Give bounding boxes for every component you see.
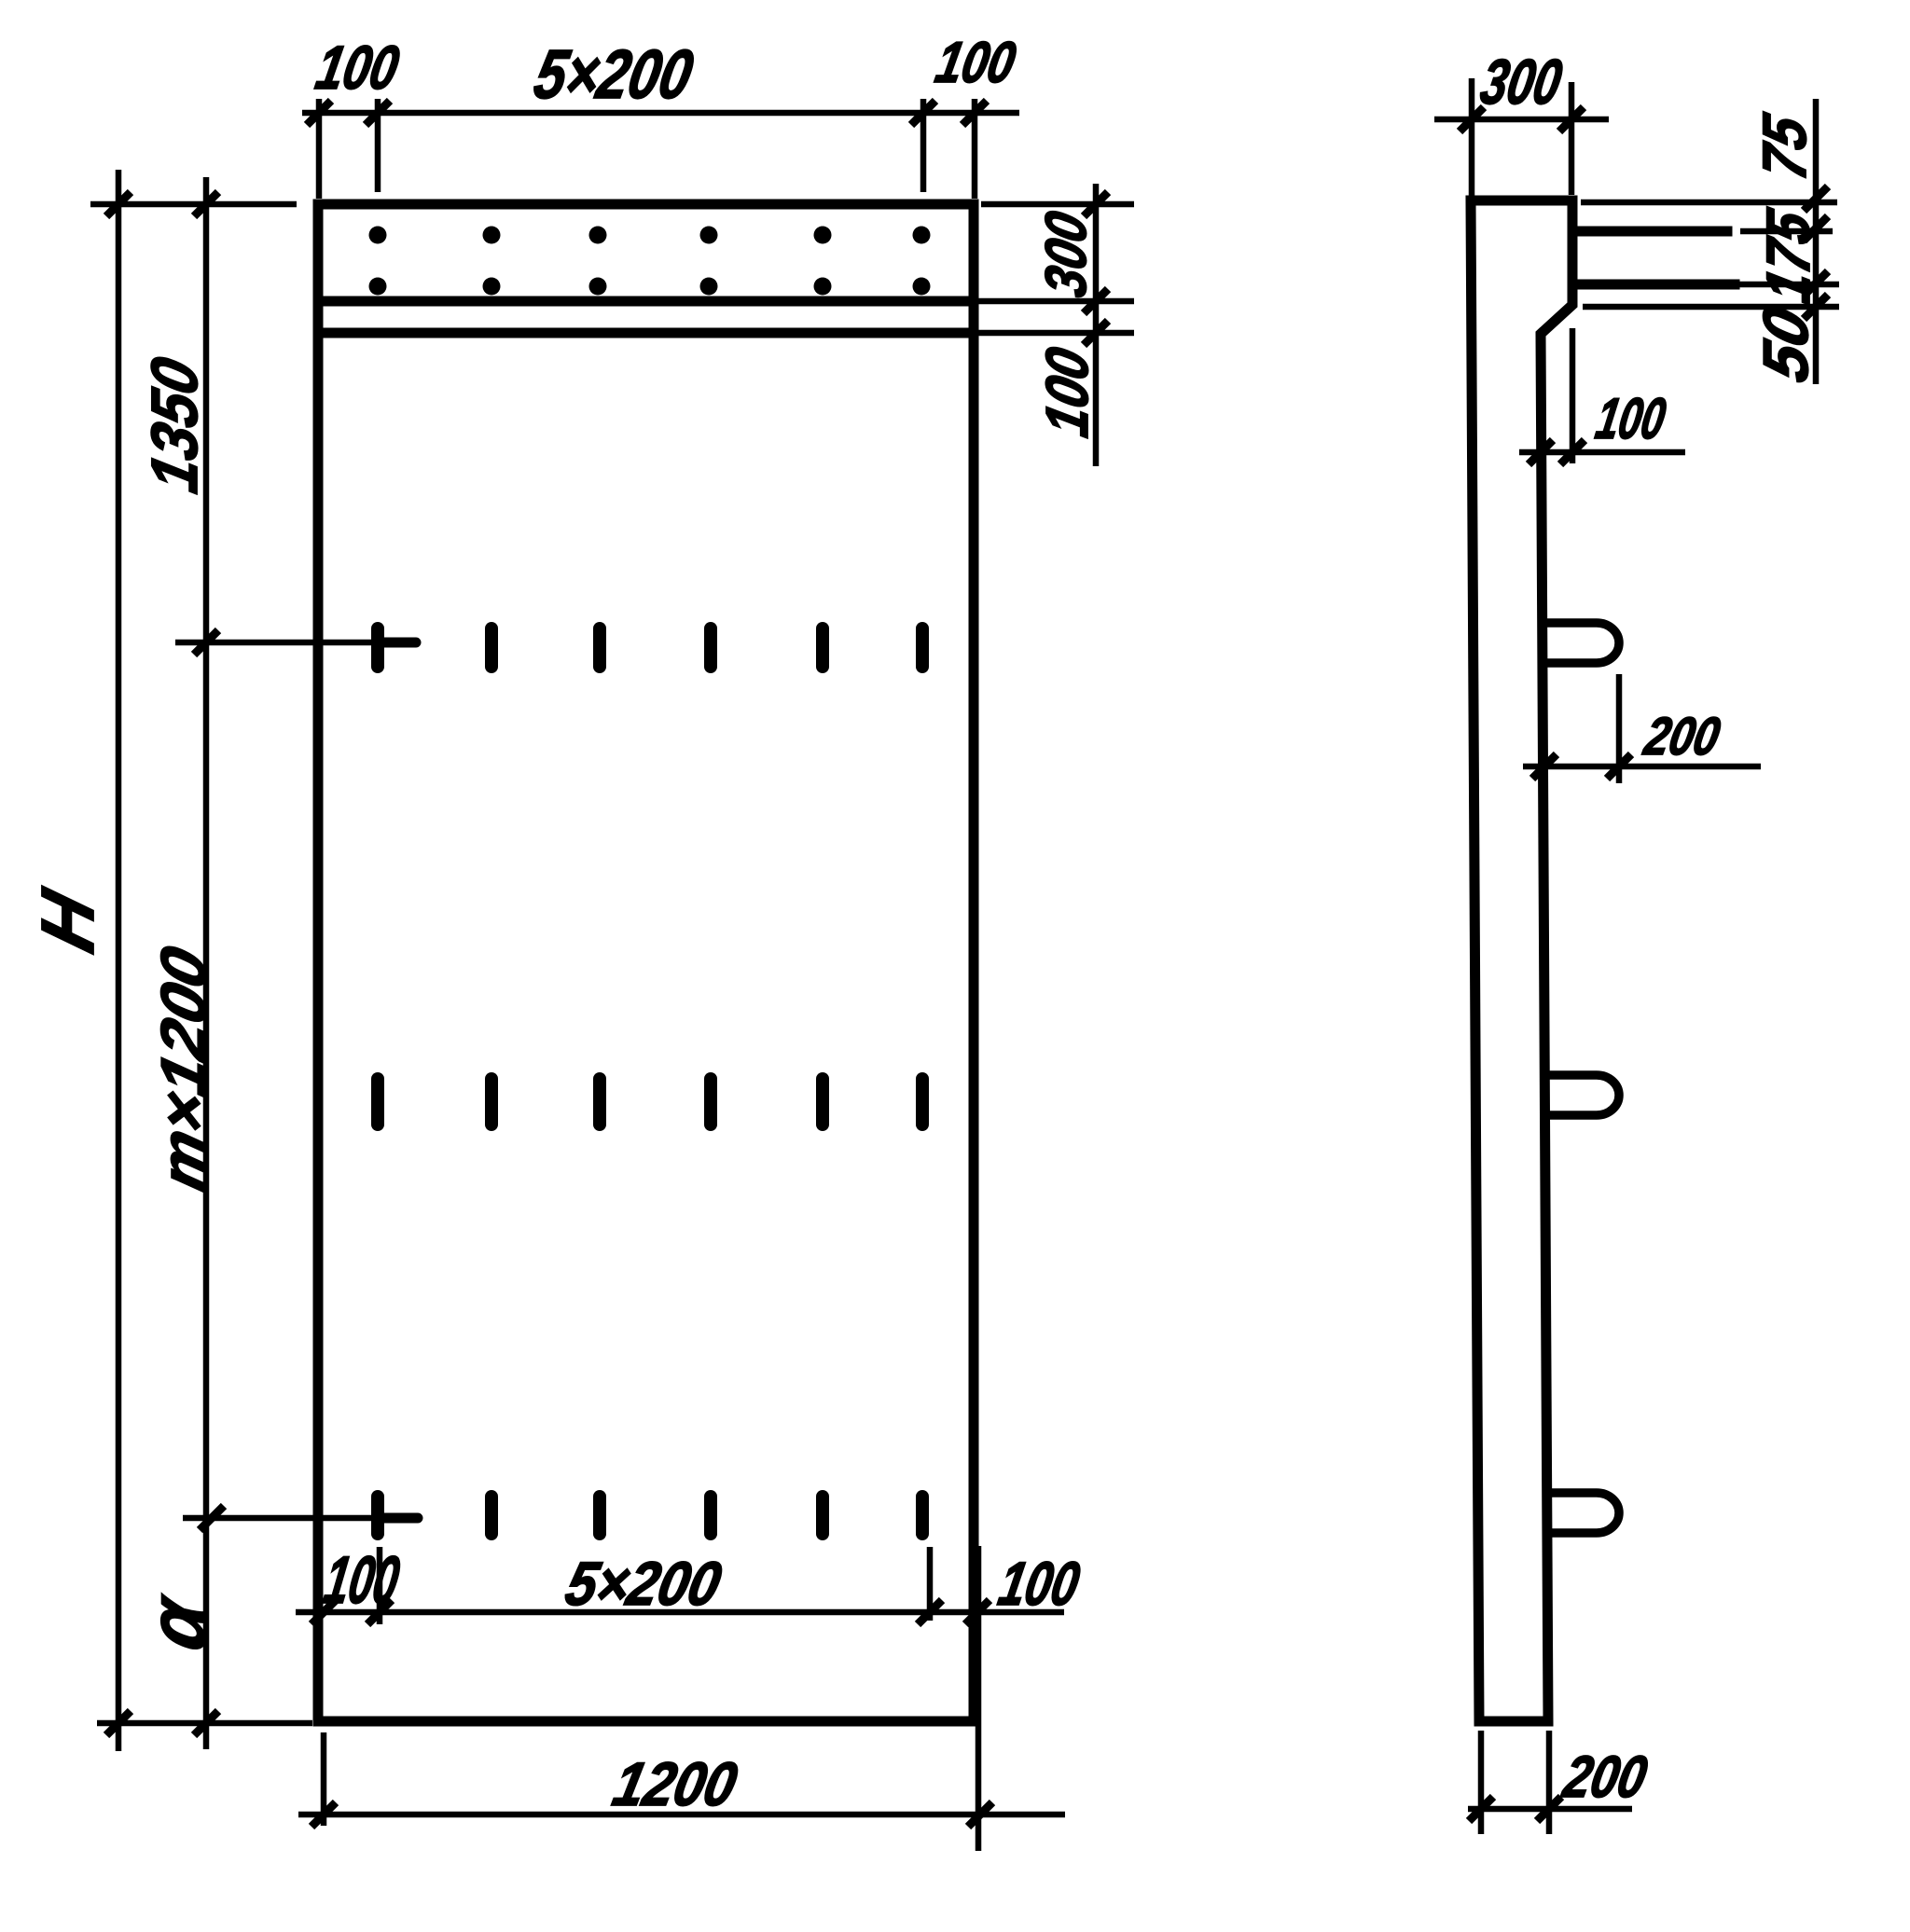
svg-text:1200: 1200 [607, 1750, 742, 1818]
svg-text:100: 100 [1591, 387, 1669, 451]
svg-text:100: 100 [311, 33, 404, 102]
svg-text:200: 200 [1639, 707, 1724, 766]
svg-text:100: 100 [931, 31, 1021, 95]
svg-text:300: 300 [1475, 46, 1567, 117]
svg-text:5×200: 5×200 [560, 1550, 727, 1618]
svg-text:1350: 1350 [139, 352, 212, 499]
svg-text:5×200: 5×200 [529, 37, 699, 114]
svg-text:300: 300 [1034, 206, 1099, 302]
svg-text:m×1200: m×1200 [148, 940, 219, 1197]
svg-text:100: 100 [993, 1549, 1085, 1619]
svg-text:175: 175 [1754, 203, 1823, 309]
svg-text:100: 100 [319, 1542, 404, 1617]
svg-text:200: 200 [1557, 1745, 1652, 1810]
svg-text:100: 100 [1033, 341, 1100, 442]
